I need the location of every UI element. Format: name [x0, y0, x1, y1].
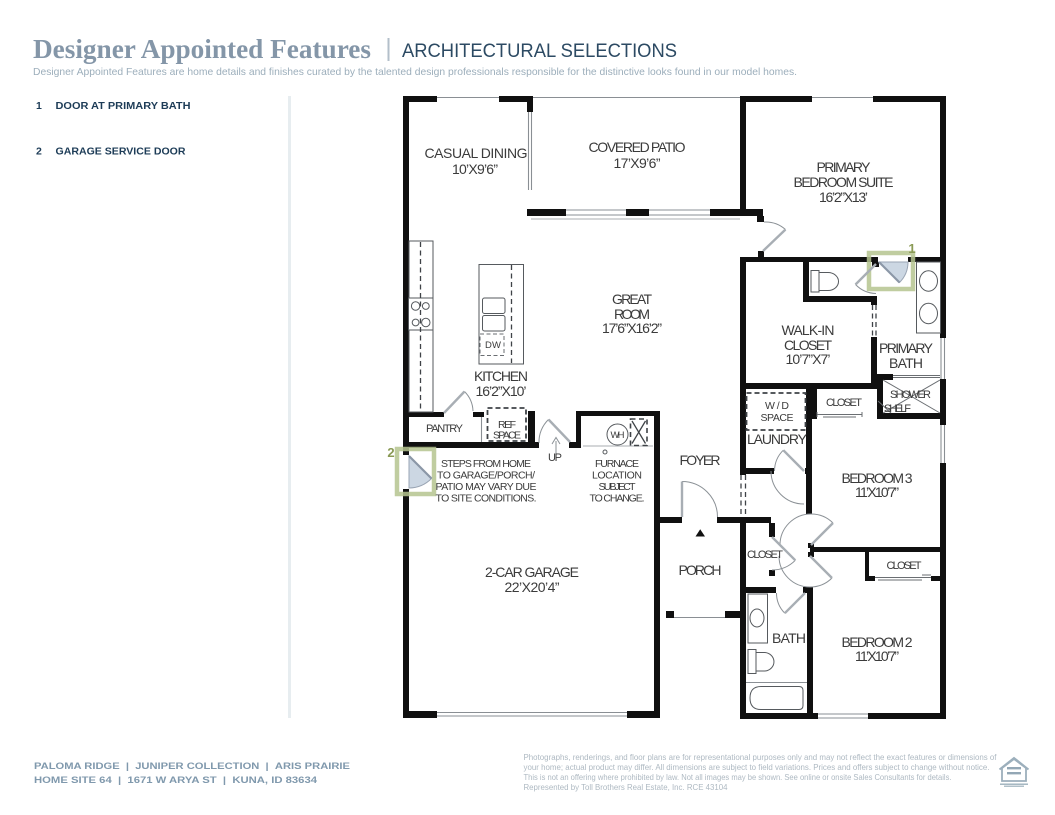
svg-text:Represented by Toll Brothers R: Represented by Toll Brothers Real Estate… — [524, 782, 728, 792]
svg-text:This is not an offering where: This is not an offering where prohibited… — [524, 772, 952, 782]
svg-text:PALOMA RIDGE | JUNIPER COLLE: PALOMA RIDGE | JUNIPER COLLECTION | ARIS… — [34, 761, 350, 772]
svg-text:HOME SITE 64 | 1671 W ARYA S: HOME SITE 64 | 1671 W ARYA ST | KUNA, ID… — [34, 775, 318, 786]
svg-text:your home; actual product may: your home; actual product may differ. Al… — [524, 762, 990, 772]
svg-text:Photographs, renderings, and f: Photographs, renderings, and floor plans… — [524, 752, 998, 762]
